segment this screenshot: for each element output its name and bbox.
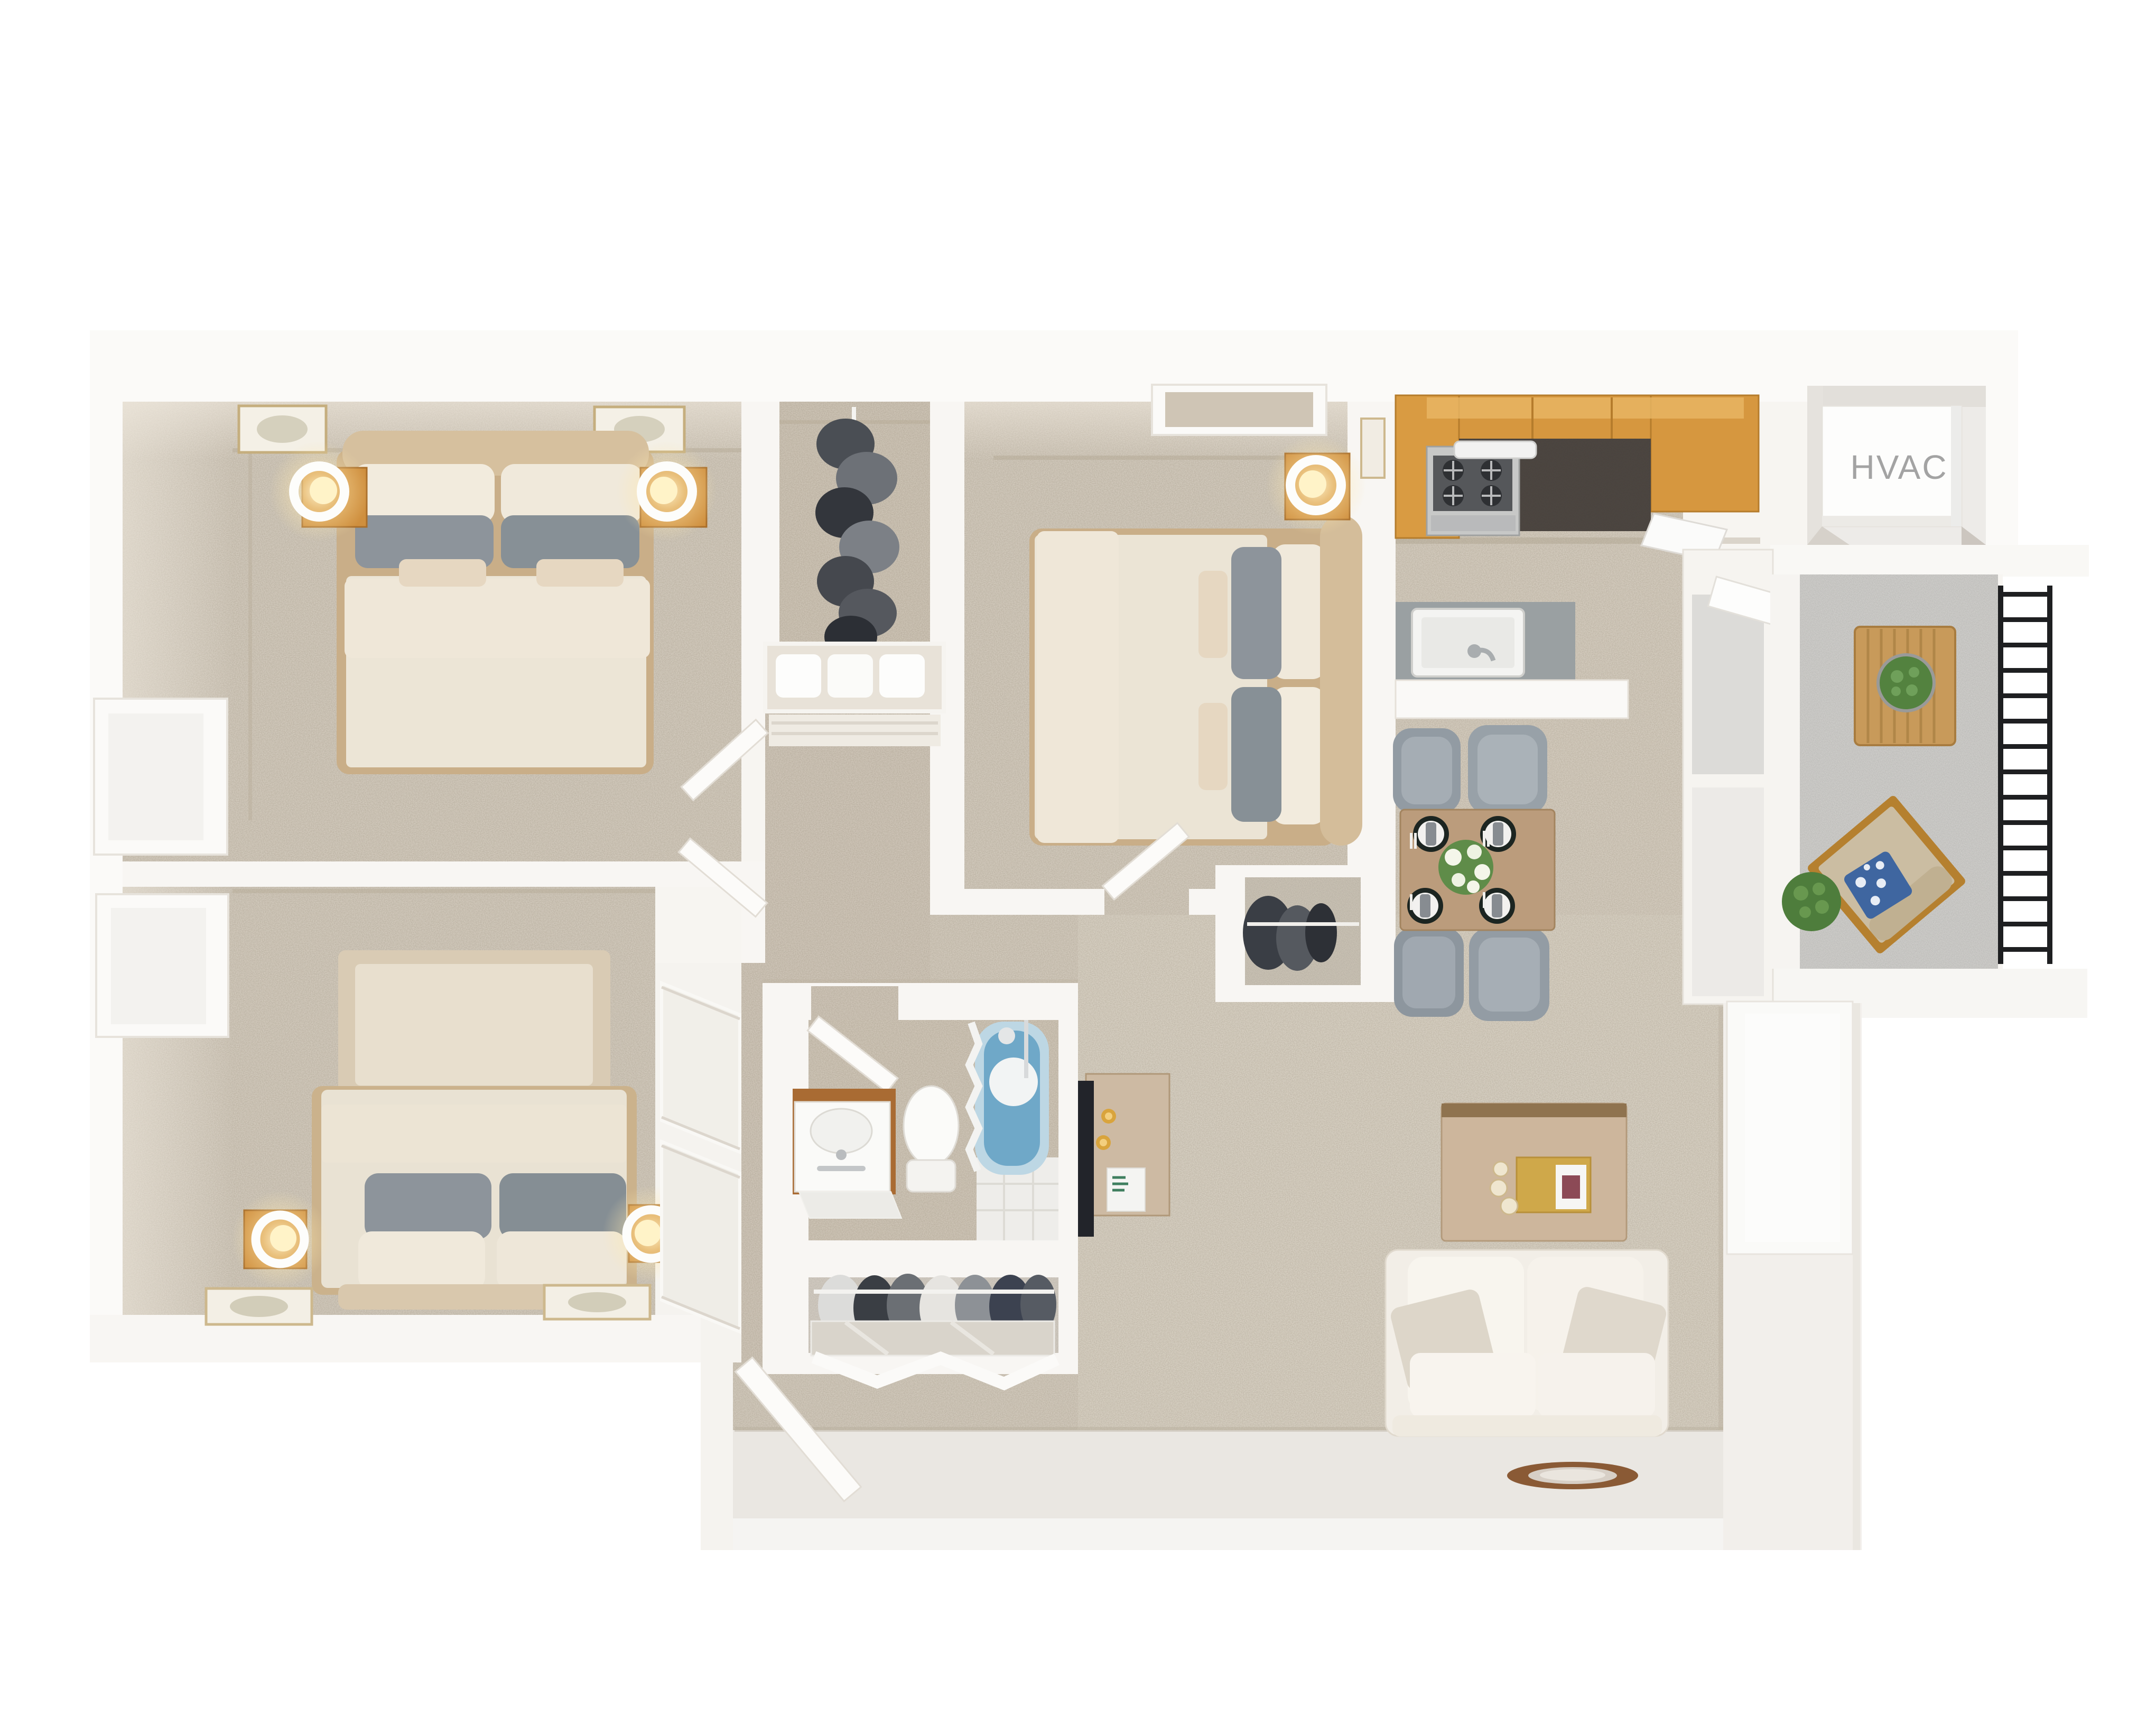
svg-text:HVAC: HVAC <box>1850 448 1948 486</box>
